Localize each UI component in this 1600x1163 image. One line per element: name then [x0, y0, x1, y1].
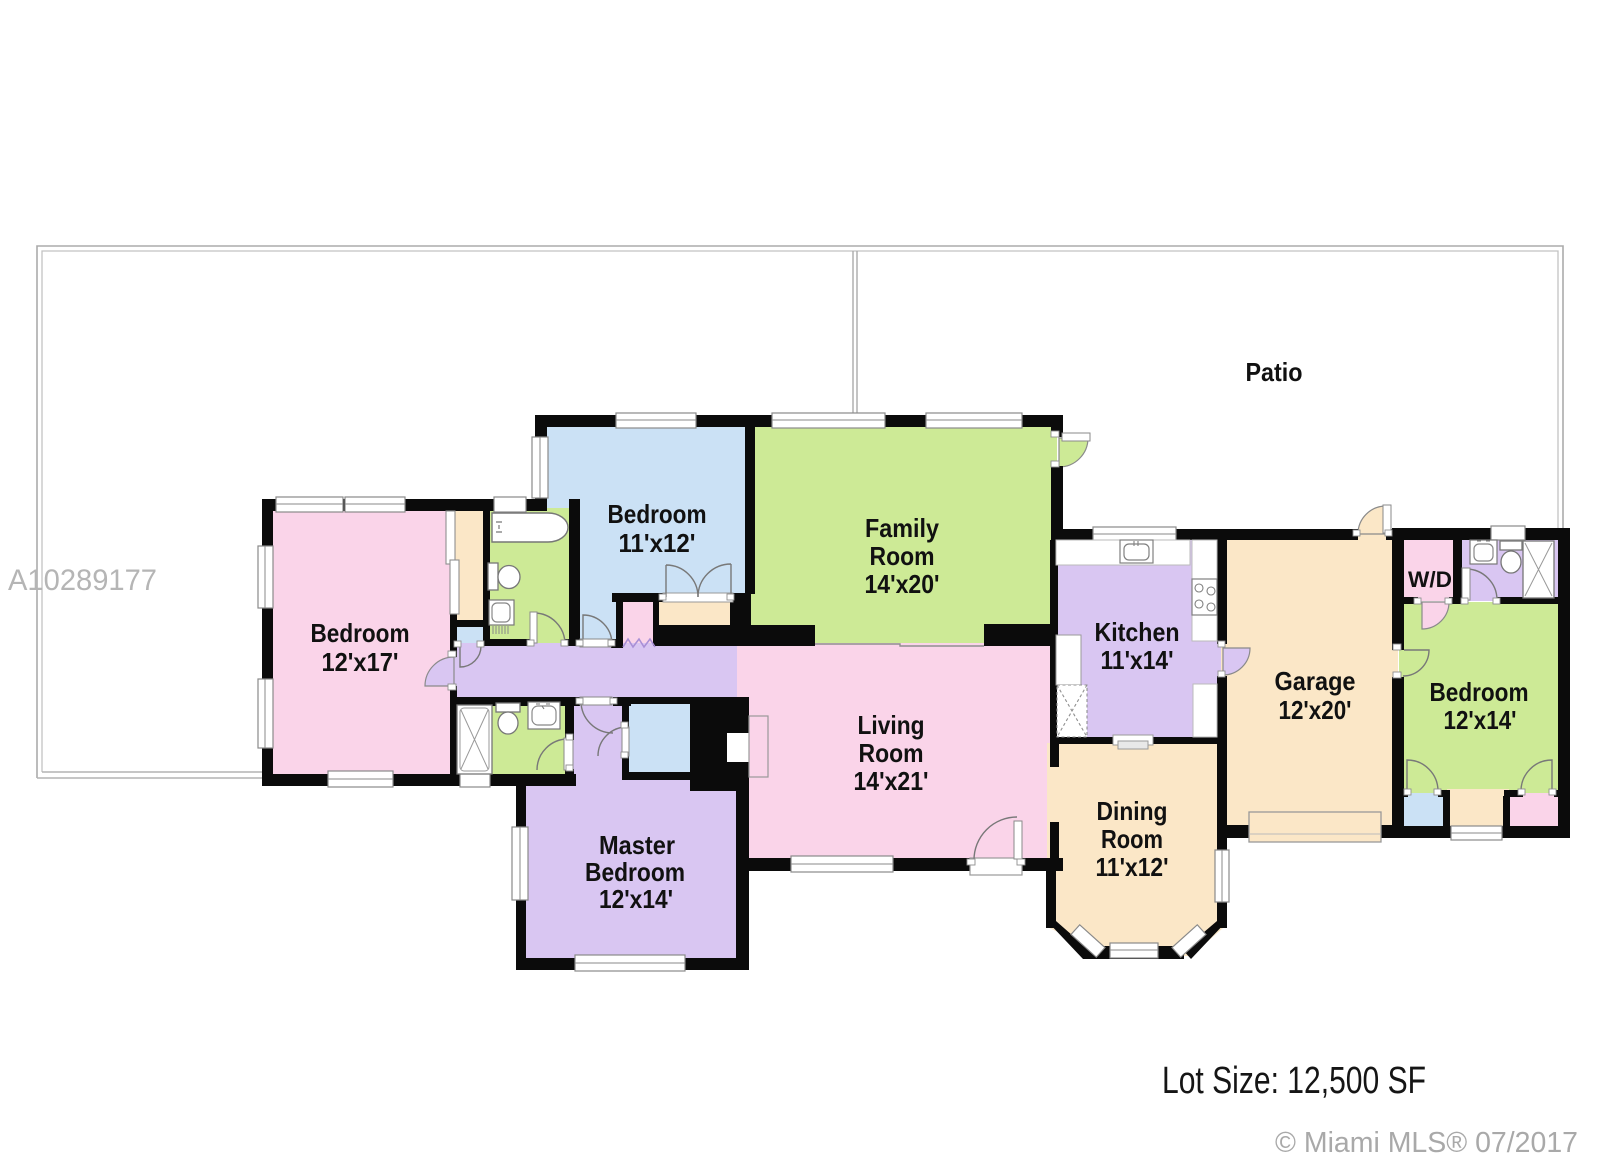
svg-text:12'x14': 12'x14'	[1444, 705, 1517, 735]
svg-text:Living: Living	[858, 710, 925, 740]
svg-text:11'x14': 11'x14'	[1101, 645, 1174, 675]
svg-text:Patio: Patio	[1246, 357, 1303, 387]
svg-text:Room: Room	[870, 541, 935, 571]
svg-text:Dining: Dining	[1097, 796, 1168, 826]
svg-text:14'x21': 14'x21'	[854, 766, 929, 796]
svg-text:Family: Family	[865, 513, 939, 543]
svg-text:Room: Room	[859, 738, 924, 768]
svg-text:Bedroom: Bedroom	[608, 499, 707, 529]
svg-text:Lot Size: 12,500 SF: Lot Size: 12,500 SF	[1162, 1060, 1426, 1102]
svg-text:W/D: W/D	[1408, 567, 1452, 592]
svg-text:Bedroom: Bedroom	[311, 618, 410, 648]
svg-text:12'x20': 12'x20'	[1279, 695, 1352, 725]
svg-text:12'x17': 12'x17'	[322, 647, 399, 677]
svg-text:Bedroom: Bedroom	[1430, 677, 1529, 707]
svg-text:Master: Master	[599, 830, 675, 860]
svg-text:11'x12': 11'x12'	[619, 528, 696, 558]
svg-text:14'x20': 14'x20'	[865, 569, 940, 599]
svg-text:A10289177: A10289177	[8, 564, 157, 597]
svg-text:© Miami MLS® 07/2017: © Miami MLS® 07/2017	[1275, 1127, 1578, 1159]
svg-text:Kitchen: Kitchen	[1095, 617, 1180, 647]
svg-text:Room: Room	[1101, 824, 1163, 854]
svg-text:Bedroom: Bedroom	[585, 857, 685, 887]
svg-text:11'x12': 11'x12'	[1096, 852, 1169, 882]
svg-text:12'x14': 12'x14'	[599, 884, 673, 914]
svg-text:Garage: Garage	[1275, 666, 1356, 696]
